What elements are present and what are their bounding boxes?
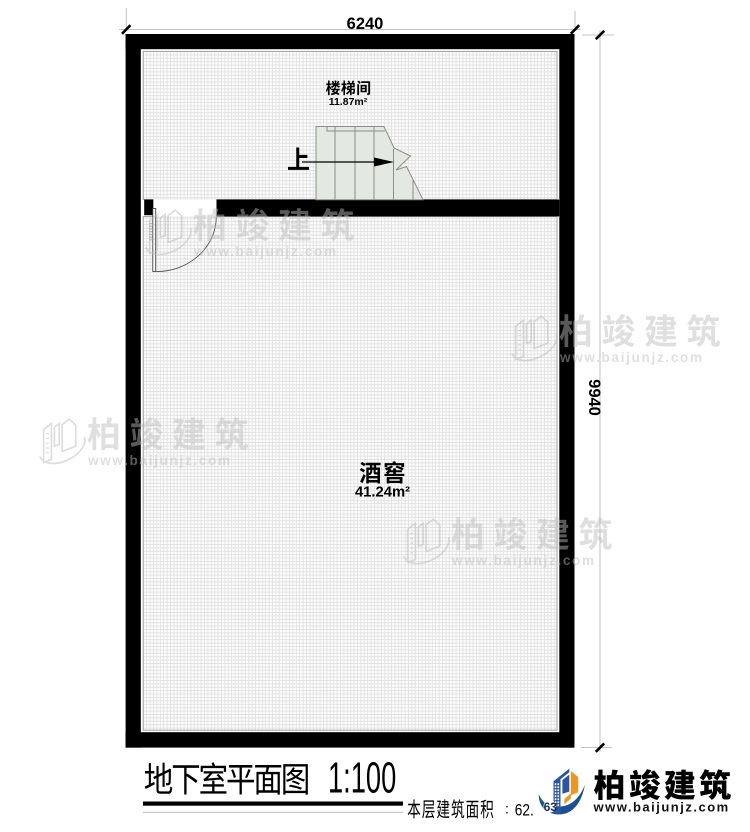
svg-text:41.24m²: 41.24m² <box>355 484 410 500</box>
svg-text:www.baijunjz.com: www.baijunjz.com <box>593 800 730 815</box>
svg-text:62.: 62. <box>515 801 534 819</box>
svg-text:63: 63 <box>544 800 558 814</box>
svg-text:www.baijunjz.com: www.baijunjz.com <box>193 244 338 259</box>
svg-text:1:100: 1:100 <box>328 753 396 802</box>
svg-text:www.baijunjz.com: www.baijunjz.com <box>559 350 704 365</box>
svg-text:www.baijunjz.com: www.baijunjz.com <box>451 553 596 568</box>
svg-text:9940: 9940 <box>585 379 603 416</box>
svg-text::: : <box>505 801 509 817</box>
svg-text:11.87m²: 11.87m² <box>329 96 368 108</box>
svg-text:www.baijunjz.com: www.baijunjz.com <box>87 453 232 468</box>
svg-text:6240: 6240 <box>347 15 384 33</box>
